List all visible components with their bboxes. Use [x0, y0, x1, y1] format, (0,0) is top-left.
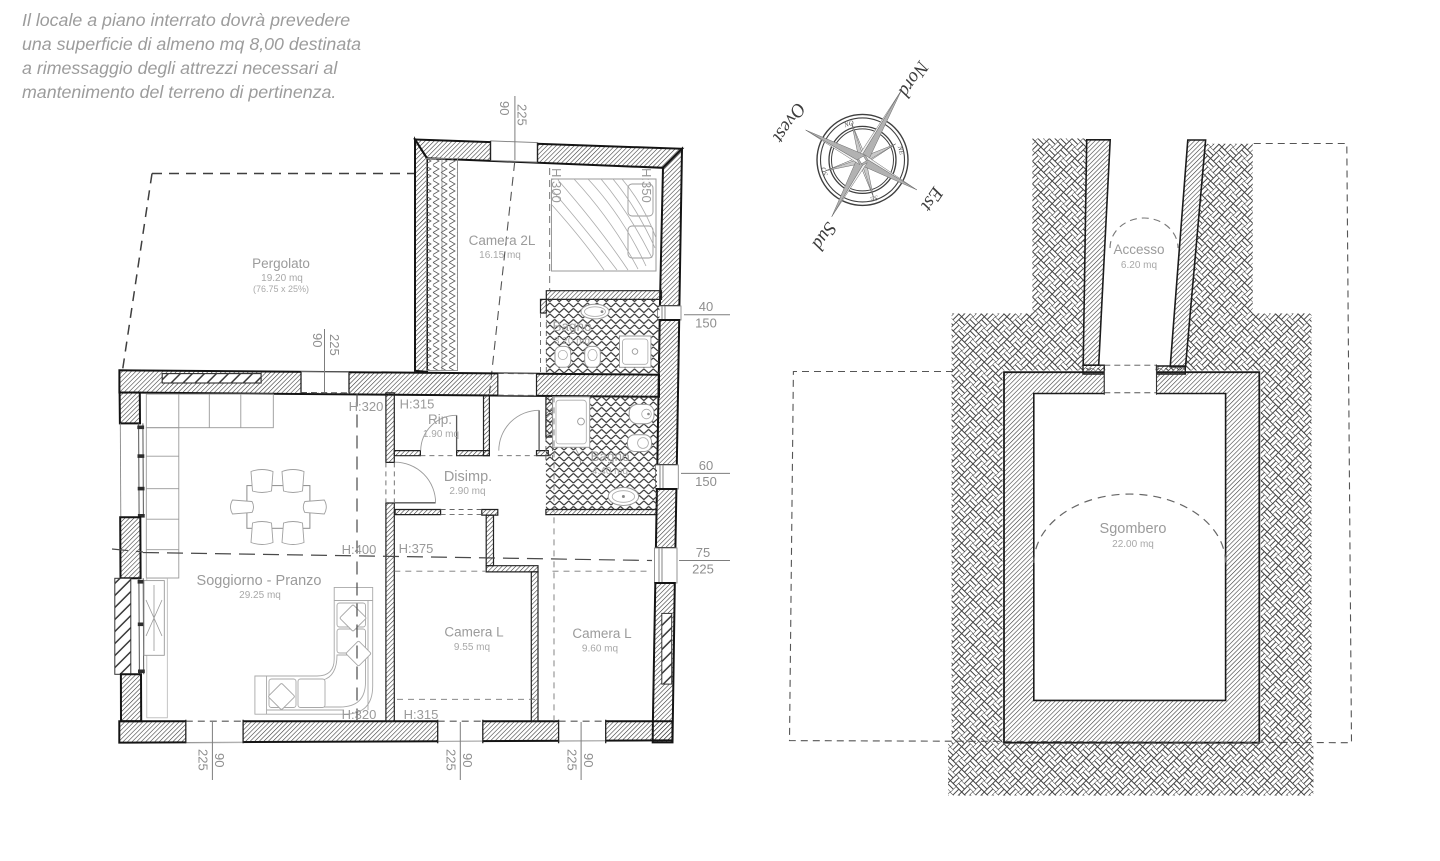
- svg-text:H:315: H:315: [400, 397, 435, 412]
- svg-text:Sgombero: Sgombero: [1100, 521, 1167, 537]
- svg-text:a rimessaggio degli attrezzi n: a rimessaggio degli attrezzi necessari a…: [22, 58, 338, 78]
- svg-text:90: 90: [460, 753, 475, 767]
- svg-text:H:320: H:320: [342, 707, 377, 722]
- svg-text:90: 90: [581, 753, 596, 767]
- svg-text:90: 90: [310, 333, 325, 347]
- svg-text:19.20 mq: 19.20 mq: [261, 273, 303, 284]
- svg-text:Bagno: Bagno: [590, 449, 629, 464]
- svg-text:H:350: H:350: [639, 168, 654, 203]
- svg-text:90: 90: [497, 101, 512, 115]
- svg-text:H:400: H:400: [342, 542, 377, 557]
- svg-text:mantenimento del terreno di pe: mantenimento del terreno di pertinenza.: [22, 82, 336, 102]
- svg-text:Pergolato: Pergolato: [252, 256, 310, 271]
- svg-text:9.55 mq: 9.55 mq: [454, 642, 490, 653]
- svg-text:H:375: H:375: [399, 541, 434, 556]
- svg-text:90: 90: [212, 753, 227, 767]
- svg-text:6.20 mq: 6.20 mq: [1121, 260, 1157, 271]
- svg-text:(76.75 x 25%): (76.75 x 25%): [253, 284, 309, 294]
- svg-text:225: 225: [565, 749, 580, 771]
- svg-text:2.90 mq: 2.90 mq: [449, 486, 485, 497]
- svg-text:Accesso: Accesso: [1113, 242, 1164, 257]
- svg-text:Bagno: Bagno: [552, 319, 591, 334]
- svg-text:225: 225: [444, 749, 459, 771]
- svg-text:40: 40: [699, 299, 713, 314]
- svg-text:75: 75: [696, 545, 710, 560]
- svg-text:150: 150: [695, 316, 717, 331]
- svg-text:3.20 mq: 3.20 mq: [554, 336, 590, 347]
- svg-text:9.60 mq: 9.60 mq: [582, 644, 618, 655]
- svg-text:Camera 2L: Camera 2L: [469, 233, 536, 248]
- svg-text:una superficie di almeno mq 8,: una superficie di almeno mq 8,00 destina…: [22, 34, 361, 54]
- svg-text:150: 150: [695, 474, 717, 489]
- svg-text:4.40 mq: 4.40 mq: [592, 466, 628, 477]
- svg-text:29.25 mq: 29.25 mq: [239, 590, 281, 601]
- svg-text:Disimp.: Disimp.: [444, 469, 492, 485]
- svg-text:Il locale a piano interrato do: Il locale a piano interrato dovrà preved…: [22, 10, 350, 30]
- svg-text:Camera L: Camera L: [572, 626, 632, 641]
- svg-text:1.90 mq: 1.90 mq: [423, 429, 459, 440]
- svg-text:225: 225: [515, 104, 530, 126]
- svg-text:22.00 mq: 22.00 mq: [1112, 539, 1154, 550]
- svg-text:225: 225: [692, 562, 714, 577]
- svg-text:H:320: H:320: [349, 399, 384, 414]
- svg-text:H:315: H:315: [404, 707, 439, 722]
- svg-text:Camera L: Camera L: [444, 625, 504, 640]
- svg-text:H:300: H:300: [549, 168, 564, 203]
- svg-text:Soggiorno - Pranzo: Soggiorno - Pranzo: [197, 573, 322, 589]
- svg-text:Rip.: Rip.: [428, 412, 452, 427]
- svg-text:225: 225: [327, 334, 342, 356]
- svg-text:16.15 mq: 16.15 mq: [479, 250, 521, 261]
- svg-text:225: 225: [196, 749, 211, 771]
- svg-text:60: 60: [699, 458, 713, 473]
